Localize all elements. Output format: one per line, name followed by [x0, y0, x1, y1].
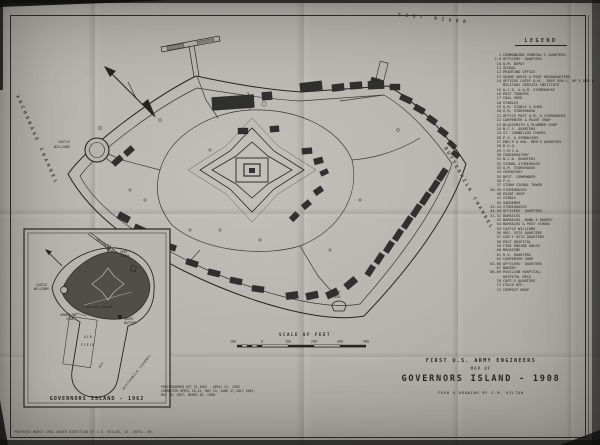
north-arrow-icon — [104, 66, 156, 118]
title-block: FIRST U.S. ARMY ENGINEERS MAP OF GOVERNO… — [368, 358, 594, 395]
legend-header: LEGEND — [515, 38, 567, 46]
scale-tick: 200 — [311, 340, 317, 344]
castle-williams-label: CASTLE — [58, 140, 70, 144]
scale-caption: SCALE OF FEET — [240, 332, 370, 337]
photo-notes: PHOTOGRAPHED OCT 31,1962 - APRIL 22, 196… — [161, 385, 311, 397]
scale-tick: 100 — [230, 340, 236, 344]
inset-shoreline-label: 1908 — [66, 317, 74, 321]
inset-original-island-label: ORIGINAL ISLAND — [86, 305, 113, 309]
castle-williams-label: WILLIAMS — [54, 145, 70, 149]
prepared-note: PREPARED MARCH 1962 UNDER DIRECTION OF C… — [14, 430, 154, 434]
scale-tick: 100 — [285, 340, 291, 344]
legend: LEGEND 1COMMANDING GENERAL'S QUARTERS2-9… — [489, 38, 593, 292]
inset-airfield-label: FIELD — [81, 343, 95, 347]
inset-south-battery-label: BATTERY — [124, 321, 137, 325]
scale-tick: 400 — [363, 340, 369, 344]
title-line2: MAP OF — [368, 366, 594, 371]
scale-tick: 300 — [337, 340, 343, 344]
south-battery — [332, 301, 346, 311]
pier — [161, 36, 220, 77]
scanned-map-photo: CASTLE WILLIAMS SOUTH BATTERY — [0, 0, 600, 445]
inset-castle-label: WILLIAMS — [34, 287, 49, 291]
inset-south-battery — [118, 315, 122, 319]
buttermilk-channel-label: BUTTERMILK CHANNEL — [442, 146, 495, 231]
scale-bar: 100 0 100 200 300 400 — [230, 340, 369, 348]
title-line1: FIRST U.S. ARMY ENGINEERS — [368, 358, 594, 364]
title-credit: FROM A DRAWING BY J.M. HILTON — [368, 391, 594, 395]
photo-note-line: MAY 10, 1967, MARCH 16, 1968. — [161, 393, 311, 397]
fort-jay — [188, 118, 316, 222]
legend-row: 72COMPOST HEAP — [489, 288, 593, 292]
anchorage-channel-label: ANCHORAGE CHANNEL — [14, 94, 59, 186]
legend-rows: 1COMMANDING GENERAL'S QUARTERS2-9OFFICER… — [489, 53, 593, 292]
inset-castle-williams — [61, 287, 68, 294]
scale-tick: 0 — [261, 340, 263, 344]
castle-williams — [85, 138, 112, 163]
east-river-label: EAST RIVER — [398, 12, 471, 26]
inset-vent-tower-label: TOWER — [120, 254, 129, 258]
inset-caption: GOVERNORS ISLAND - 1962 — [50, 396, 145, 402]
inset-map: BROOKLYN BATTERY TUNNEL ORIGINAL ISLAND … — [24, 229, 170, 407]
page-title: GOVERNORS ISLAND - 1908 — [368, 374, 594, 384]
inset-airfield-label: AIR — [84, 335, 93, 339]
